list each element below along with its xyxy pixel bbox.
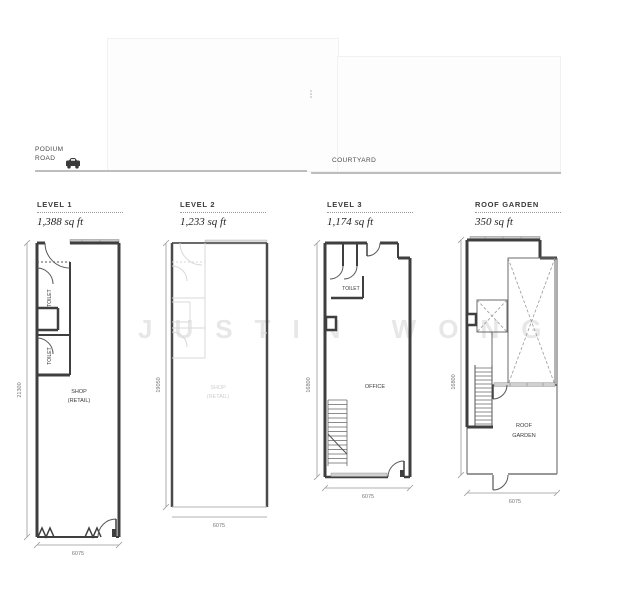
shop-label-line1: SHOP: [71, 389, 87, 395]
roof-garden-label-line2: GARDEN: [512, 433, 536, 439]
faint-elevation-outline: [107, 38, 339, 172]
width-dimension: 6075: [213, 523, 225, 529]
podium-road-line1: PODIUM: [35, 146, 63, 155]
level3-dimensions: 16800 6075: [306, 240, 413, 500]
plan-area: 1,388 sq ft: [37, 216, 129, 228]
folding-door-symbol: [38, 528, 54, 537]
ghost-shop-label-line2: (RETAIL): [207, 394, 230, 400]
faint-elevation-outline-right: [337, 56, 561, 172]
courtyard-label: COURTYARD: [332, 157, 376, 166]
plan-title: LEVEL 3: [327, 200, 419, 209]
level3-interior-walls: [326, 243, 404, 477]
plan-area: 350 sq ft: [475, 216, 567, 228]
width-dimension: 6075: [362, 494, 374, 500]
plan-header-level1: LEVEL 1 1,388 sq ft: [37, 200, 129, 228]
plan-header-roof-garden: ROOF GARDEN 350 sq ft: [475, 200, 567, 228]
level2-ghost-interior: [172, 243, 267, 358]
toilet-label: TOILET: [342, 286, 359, 292]
level2-walls: [172, 240, 267, 507]
height-dimension: 19050: [156, 377, 162, 392]
plan-title: ROOF GARDEN: [475, 200, 567, 209]
height-dimension: 16800: [451, 374, 457, 389]
level3-stair: [328, 400, 347, 466]
plan-drawing-level3: TOILET OFFICE 16800 6075: [295, 238, 435, 518]
plan-header-level2: LEVEL 2 1,233 sq ft: [180, 200, 272, 228]
ghost-shop-label-line1: SHOP: [210, 385, 226, 391]
roof-void-skylight: [467, 258, 555, 385]
office-label: OFFICE: [365, 384, 385, 390]
plan-drawing-level2: SHOP (RETAIL) 19050 6075: [150, 238, 280, 538]
header-dotted-rule: [180, 211, 266, 213]
plan-title: LEVEL 1: [37, 200, 129, 209]
road-ground-line: [35, 170, 307, 172]
faint-marker: [310, 90, 312, 98]
height-dimension: 21300: [17, 382, 23, 397]
width-dimension: 6075: [72, 551, 84, 557]
toilet-label: TOILET: [47, 347, 53, 364]
plan-drawing-roof-garden: ROOF GARDEN 16800 6075: [445, 235, 580, 525]
header-dotted-rule: [327, 211, 413, 213]
plan-area: 1,174 sq ft: [327, 216, 419, 228]
toilet-label: TOILET: [47, 289, 53, 306]
plan-area: 1,233 sq ft: [180, 216, 272, 228]
plan-header-level3: LEVEL 3 1,174 sq ft: [327, 200, 419, 228]
shop-label-line2: (RETAIL): [68, 398, 91, 404]
roof-garden-label-line1: ROOF: [516, 423, 533, 429]
roof-stair: [467, 365, 493, 427]
podium-road-line2: ROAD: [35, 155, 63, 164]
height-dimension: 16800: [306, 377, 312, 392]
width-dimension: 6075: [509, 499, 521, 505]
plan-title: LEVEL 2: [180, 200, 272, 209]
floor-plan-sheet: PODIUM ROAD COURTYARD JUSTIN WONG LEVEL …: [0, 0, 621, 600]
plan-drawing-level1: TOILET TOILET SHOP (RETAIL) 21300 6075: [12, 238, 152, 568]
podium-road-label: PODIUM ROAD: [35, 146, 63, 163]
header-dotted-rule: [475, 211, 561, 213]
car-icon: [63, 157, 83, 170]
level3-walls: [325, 243, 410, 477]
header-dotted-rule: [37, 211, 123, 213]
courtyard-ground-line: [311, 172, 561, 174]
